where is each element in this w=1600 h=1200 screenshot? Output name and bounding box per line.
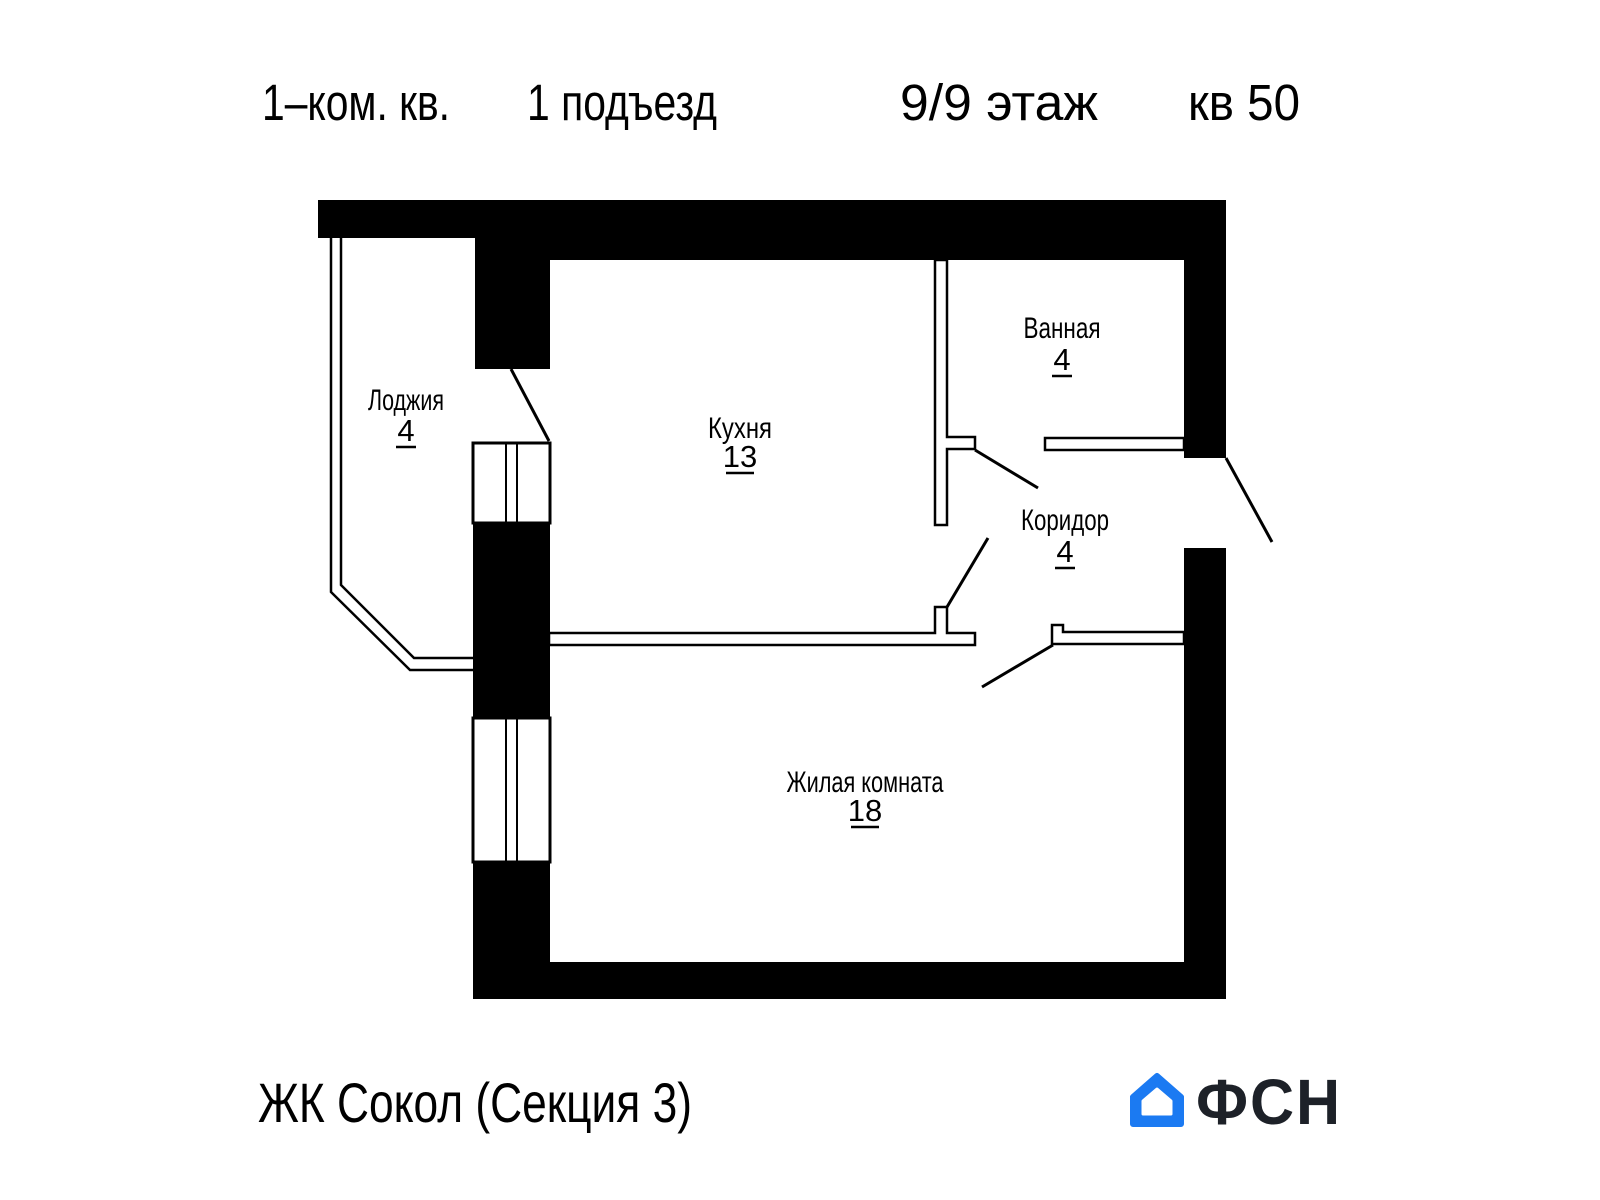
wall-left-middle-pier	[473, 523, 550, 718]
room-name: Ванная	[1024, 312, 1101, 345]
partition-kitchen-living-room	[549, 607, 975, 645]
room-area: 4	[397, 413, 414, 448]
header-apartment-type: 1–ком. кв.	[262, 74, 450, 131]
header-unit-number: кв 50	[1188, 74, 1300, 131]
kitchen-window-frame	[473, 443, 550, 523]
partition-bathroom-corridor	[1045, 438, 1184, 450]
room-label-corridor: Коридор 4	[1021, 504, 1109, 569]
room-area: 18	[848, 793, 882, 828]
room-area: 4	[1053, 342, 1070, 377]
room-label-loggia: Лоджия 4	[368, 384, 444, 448]
kitchen-window	[473, 443, 550, 523]
project-title: ЖК Сокол (Секция 3)	[258, 1071, 692, 1134]
bathroom-door-swing	[975, 450, 1038, 488]
room-label-living-room: Жилая комната 18	[787, 766, 944, 828]
room-label-bathroom: Ванная 4	[1024, 312, 1101, 377]
plan-header: 1–ком. кв. 1 подъезд 9/9 этаж кв 50	[262, 74, 1300, 131]
loggia-glazing	[331, 238, 473, 670]
living-room-door-swing	[982, 645, 1053, 687]
room-label-kitchen: Кухня 13	[708, 412, 772, 474]
plan-footer: ЖК Сокол (Секция 3) ФСН	[258, 1066, 1342, 1138]
living-room-window	[473, 718, 550, 862]
room-area: 4	[1056, 534, 1073, 569]
room-area: 13	[723, 439, 757, 474]
wall-top-left	[318, 200, 475, 238]
wall-bottom	[473, 962, 1226, 999]
header-entrance: 1 подъезд	[527, 74, 717, 131]
logo-text: ФСН	[1196, 1066, 1342, 1138]
entrance-door-swing	[1226, 458, 1272, 542]
wall-right-upper	[1184, 200, 1226, 458]
floor-plan-page: 1–ком. кв. 1 подъезд 9/9 этаж кв 50	[0, 0, 1600, 1200]
wall-loggia-kitchen-pier	[475, 200, 550, 369]
header-floor: 9/9 этаж	[900, 74, 1098, 131]
wall-right-lower	[1184, 548, 1226, 999]
living-room-window-frame	[473, 718, 550, 862]
developer-logo: ФСН	[1133, 1066, 1342, 1138]
wall-top-right	[550, 200, 1184, 260]
loggia-door-swing	[511, 369, 549, 441]
room-name: Коридор	[1021, 504, 1109, 537]
wall-left-bottom-pier	[473, 862, 550, 999]
partition-kitchen-bathroom	[935, 260, 975, 525]
loggia-glazing-outer-line	[331, 238, 473, 670]
kitchen-door-swing	[947, 538, 988, 607]
floor-plan-drawing: 1–ком. кв. 1 подъезд 9/9 этаж кв 50	[0, 0, 1600, 1200]
partition-corridor-living-room	[1052, 625, 1184, 644]
